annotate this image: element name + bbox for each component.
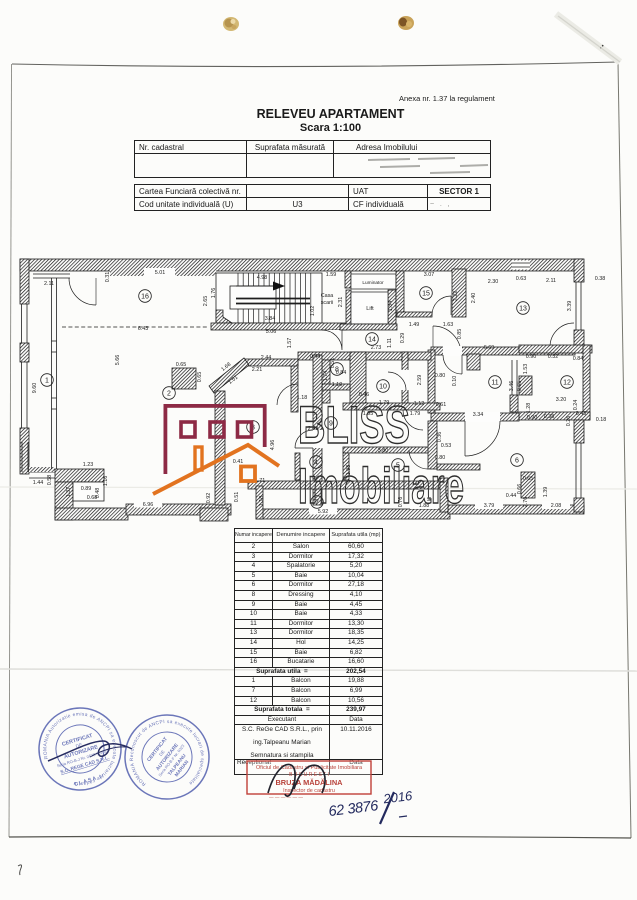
svg-text:CLASA II: CLASA II bbox=[74, 773, 106, 788]
svg-text:2016: 2016 bbox=[382, 788, 414, 807]
svg-text:62 3876: 62 3876 bbox=[328, 798, 381, 820]
svg-text:BRUZA MĂDĂLINA: BRUZA MĂDĂLINA bbox=[275, 778, 343, 787]
